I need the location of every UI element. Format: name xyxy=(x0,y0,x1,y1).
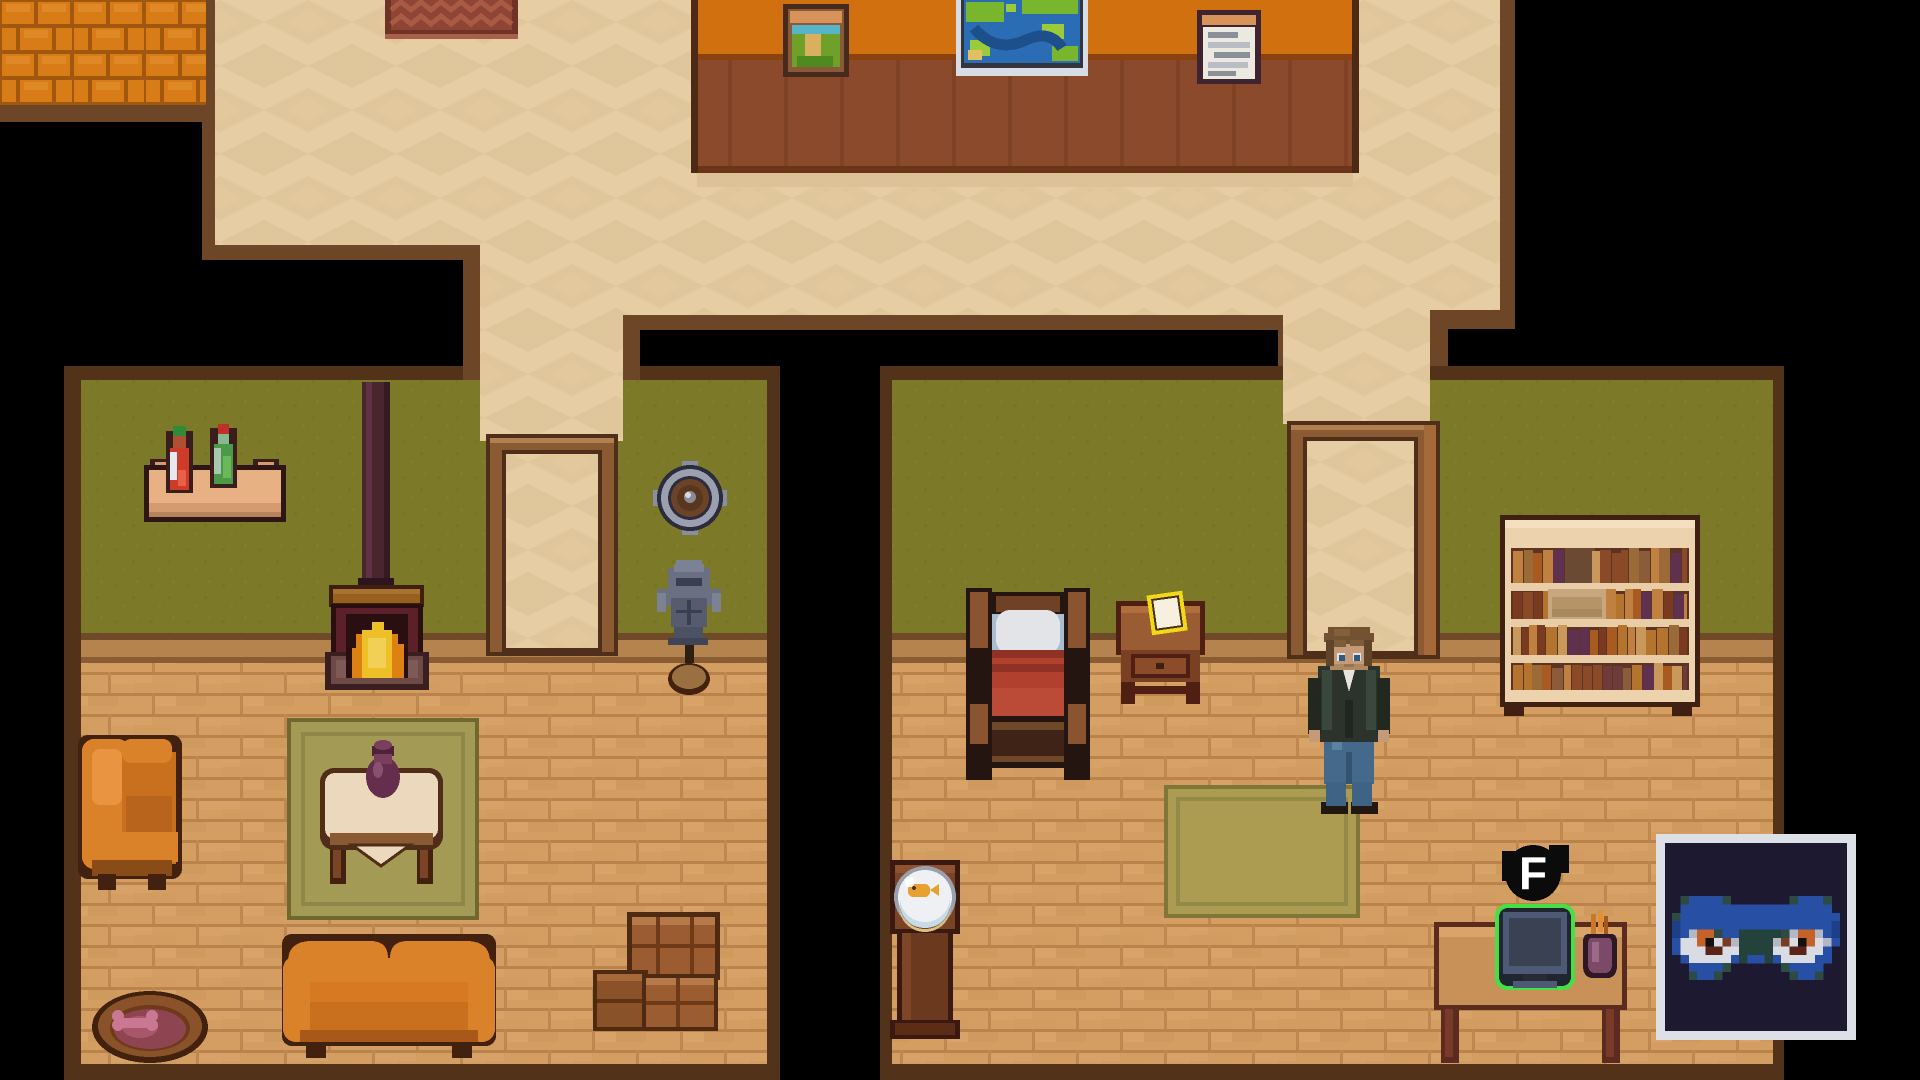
svg-text:F: F xyxy=(1519,847,1547,899)
